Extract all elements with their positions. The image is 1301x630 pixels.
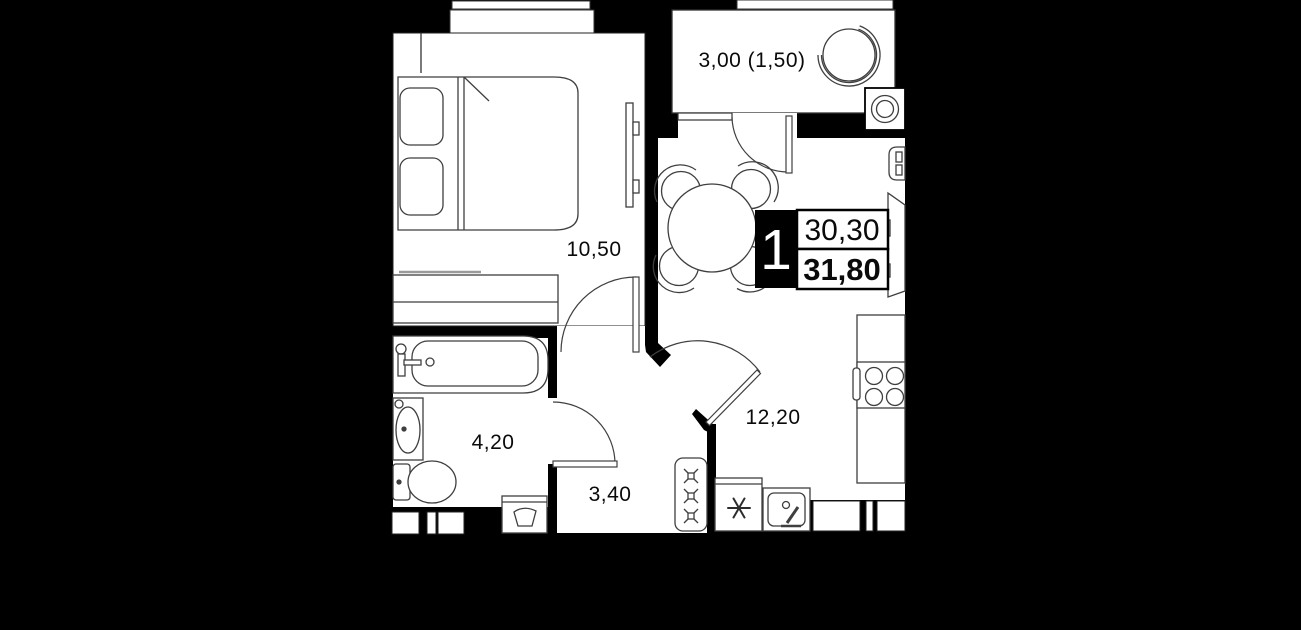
wall-bedroom-right-end — [645, 326, 658, 340]
floor-plan-canvas: 10,50 3,00 (1,50) 12,20 4,20 3,40 1 30,3… — [0, 0, 1301, 630]
unit-lower-area: 31,80 — [803, 252, 881, 287]
dining-table — [668, 184, 756, 272]
balcony-parapet — [737, 0, 893, 9]
balcony-area-label: 3,00 (1,50) — [698, 49, 805, 72]
boiler — [889, 147, 905, 180]
unit-rooms-count: 1 — [760, 218, 792, 282]
washing-machine — [502, 496, 547, 533]
bed — [398, 77, 578, 230]
kitchen-sink — [763, 488, 810, 531]
hallway-area-label: 3,40 — [589, 483, 632, 506]
unit-card: 1 30,30 31,80 — [755, 210, 888, 289]
bathtub — [393, 336, 548, 393]
bathroom-area-label: 4,20 — [472, 431, 515, 454]
window — [877, 501, 905, 531]
washbasin — [393, 398, 423, 460]
stove — [853, 362, 905, 408]
window — [866, 501, 873, 531]
bedroom-area-label: 10,50 — [566, 238, 621, 261]
window — [438, 512, 464, 534]
balcony-window-sill — [678, 113, 732, 120]
bedroom-window-bay — [450, 10, 594, 33]
window — [427, 512, 436, 534]
refrigerator — [715, 478, 762, 531]
pillow — [400, 158, 443, 215]
unit-upper-area: 30,30 — [804, 214, 879, 247]
bedroom-window-bay-outer — [452, 1, 590, 9]
wardrobe — [393, 272, 558, 323]
vent-fan — [865, 88, 905, 130]
window — [392, 512, 419, 534]
floor-plan: 10,50 3,00 (1,50) 12,20 4,20 3,40 1 30,3… — [0, 0, 1301, 630]
window — [813, 501, 860, 531]
kitchen-area-label: 12,20 — [745, 406, 800, 429]
pillow — [400, 88, 443, 145]
toilet — [393, 461, 456, 503]
shoe-cabinet — [675, 458, 707, 531]
bathroom-doorway — [548, 398, 557, 464]
background — [0, 0, 1301, 630]
